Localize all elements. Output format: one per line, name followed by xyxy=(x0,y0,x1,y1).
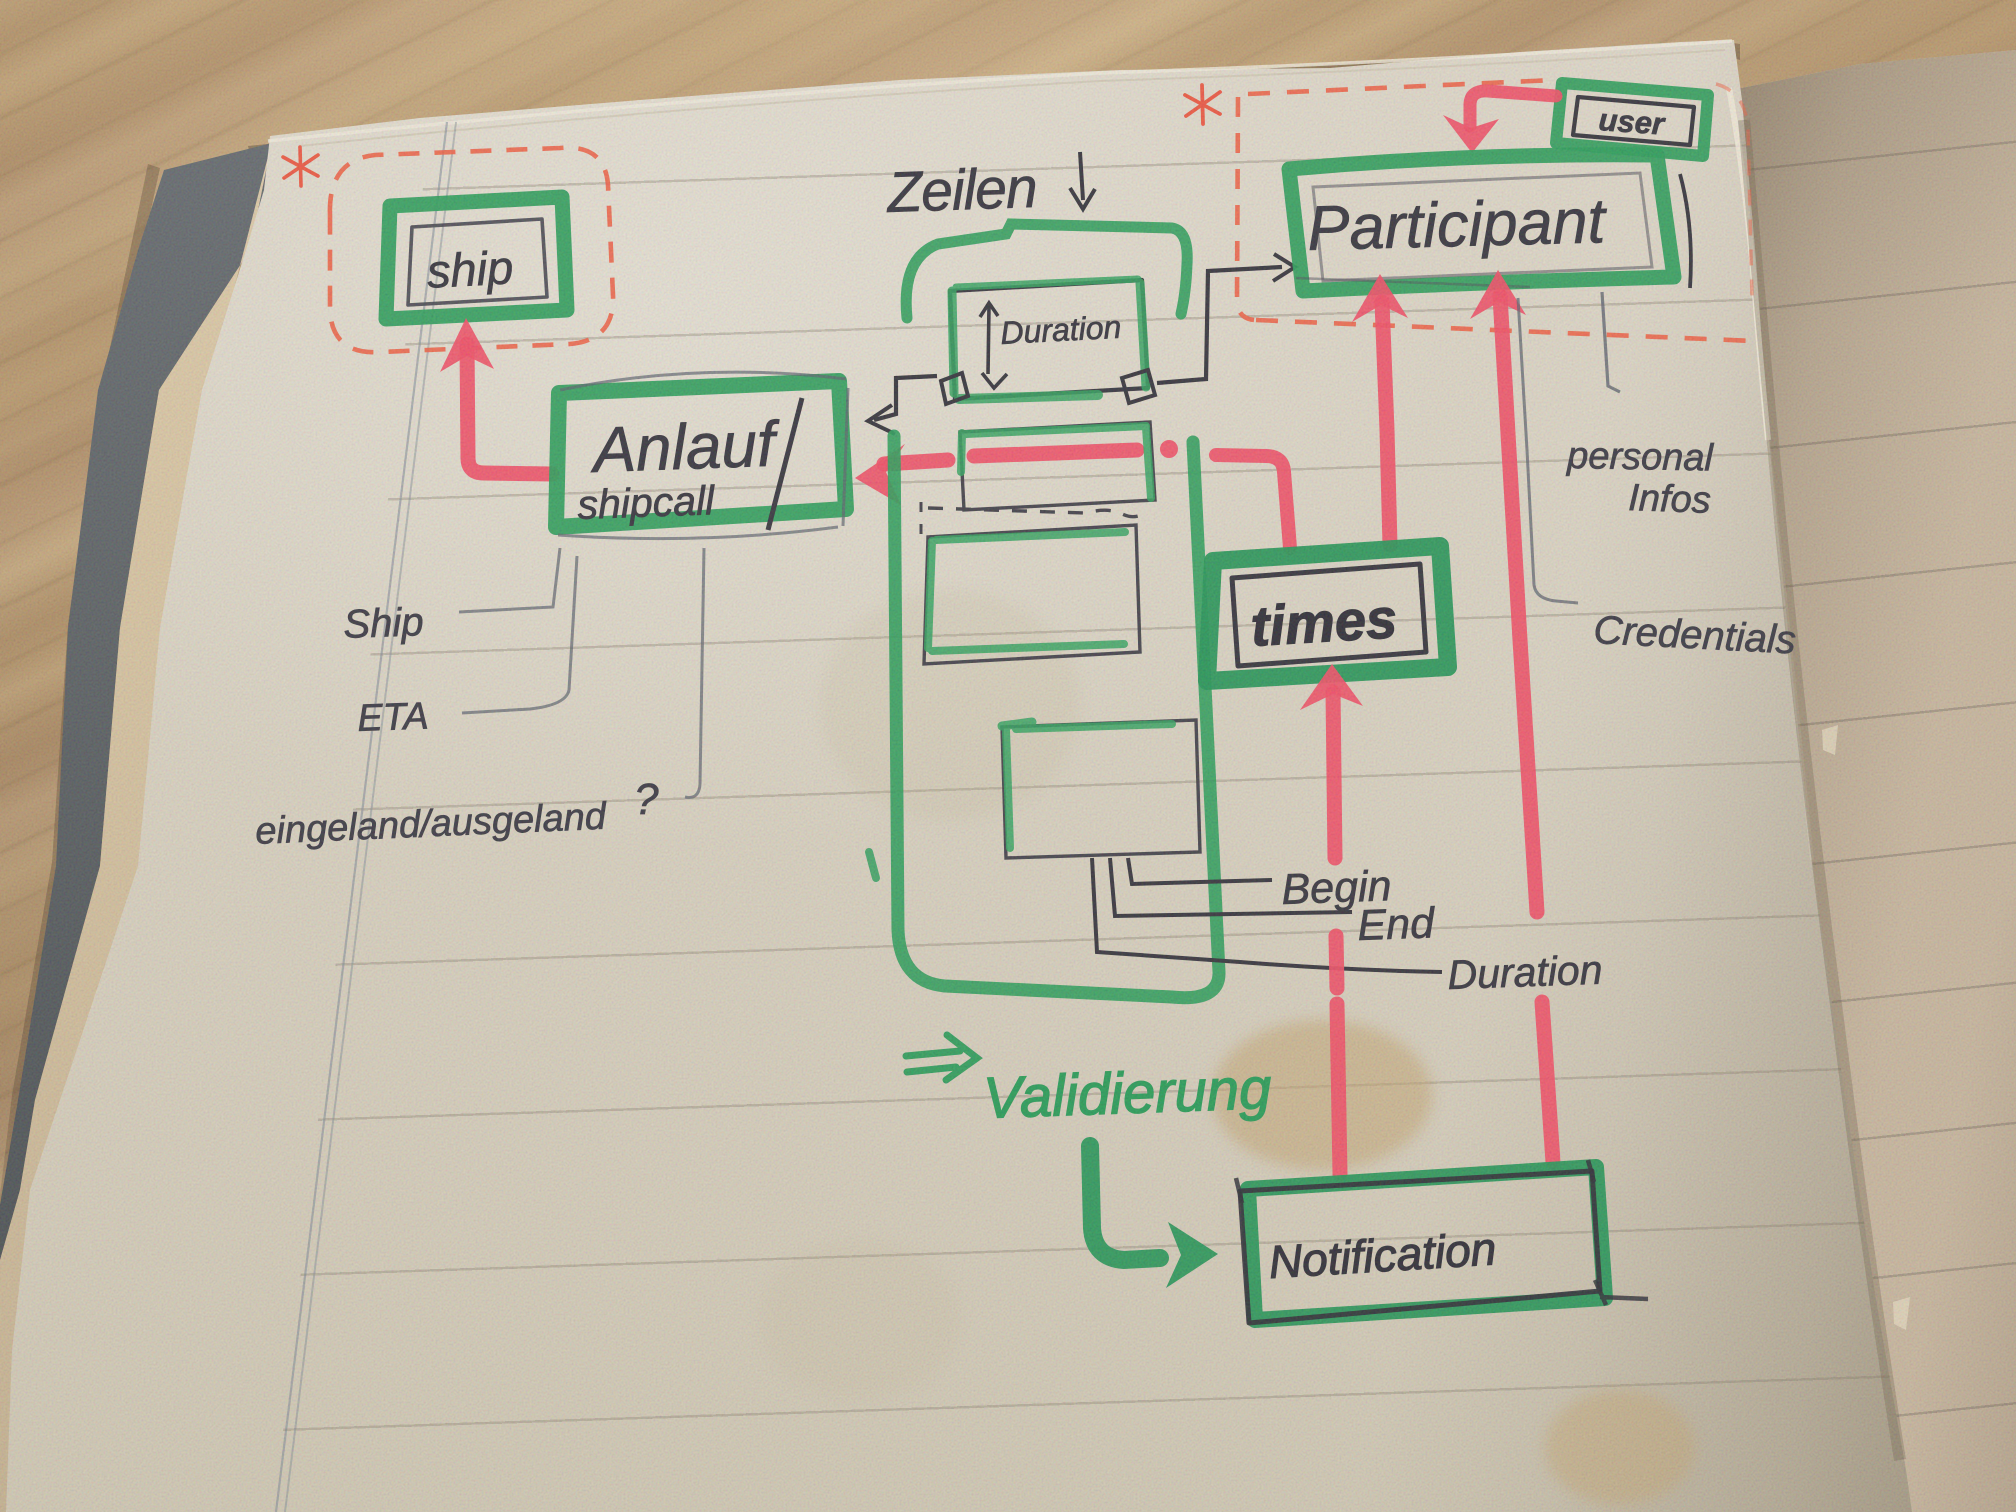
svg-text:user: user xyxy=(1598,102,1668,142)
svg-text:shipcall: shipcall xyxy=(577,477,717,528)
svg-text:ship: ship xyxy=(426,240,515,297)
svg-text:Infos: Infos xyxy=(1628,477,1712,522)
svg-text:Zeilen: Zeilen xyxy=(884,156,1037,225)
svg-text:eingeland/ausgeland: eingeland/ausgeland xyxy=(254,796,608,853)
svg-text:Participant: Participant xyxy=(1307,186,1609,264)
svg-text:Duration: Duration xyxy=(1447,947,1603,998)
svg-text:ETA: ETA xyxy=(357,695,430,739)
svg-text:?: ? xyxy=(634,775,659,824)
svg-text:times: times xyxy=(1249,586,1399,658)
svg-text:End: End xyxy=(1357,899,1437,950)
svg-text:Credentials: Credentials xyxy=(1593,608,1797,663)
svg-text:personal: personal xyxy=(1566,435,1715,480)
svg-text:Notification: Notification xyxy=(1267,1222,1497,1288)
svg-text:Duration: Duration xyxy=(999,309,1122,351)
svg-text:Ship: Ship xyxy=(343,600,425,647)
svg-text:Anlauf: Anlauf xyxy=(588,407,782,486)
svg-text:Validierung: Validierung xyxy=(982,1056,1272,1131)
